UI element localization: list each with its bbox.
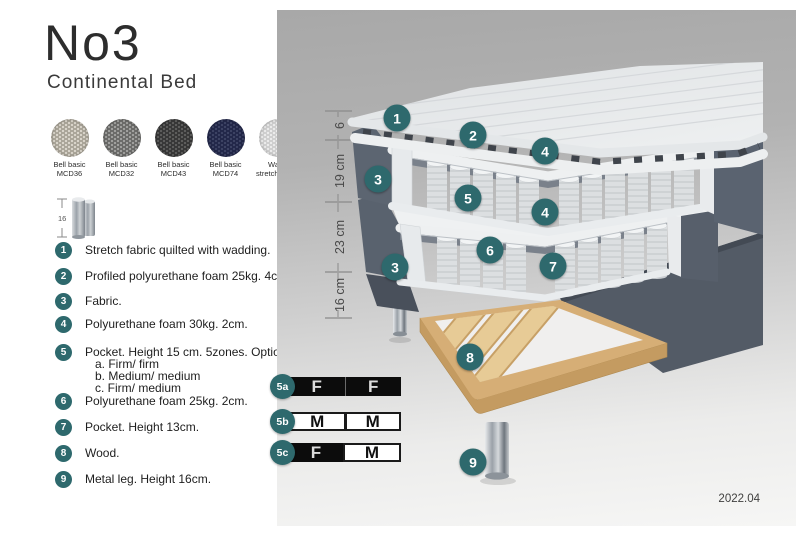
firmness-badge: 5a xyxy=(270,374,295,399)
legend-number: 2 xyxy=(55,268,72,285)
fabric-swatch-label: Bell basicMCD74 xyxy=(209,160,241,178)
legend-item-7: 7 Pocket. Height 13cm. xyxy=(55,418,199,436)
legend-text: Profiled polyurethane foam 25kg. 4cm. xyxy=(85,269,290,283)
legend-number: 3 xyxy=(55,293,72,310)
callout-8: 8 xyxy=(457,344,484,371)
fabric-swatch-label: Bell basicMCD32 xyxy=(105,160,137,178)
legend-text: Metal leg. Height 16cm. xyxy=(85,472,211,486)
firmness-row-5a: 5a F F xyxy=(270,374,401,399)
firmness-bar: F F xyxy=(289,377,401,396)
firmness-cell: M xyxy=(346,412,402,431)
callout-9: 9 xyxy=(460,449,487,476)
callout-5: 5 xyxy=(455,185,482,212)
legend-item-9: 9 Metal leg. Height 16cm. xyxy=(55,470,211,488)
version-label: 2022.04 xyxy=(718,493,760,505)
callout-7: 7 xyxy=(540,253,567,280)
firmness-cell: F xyxy=(289,377,345,396)
legend-item-2: 2 Profiled polyurethane foam 25kg. 4cm. xyxy=(55,267,290,285)
dimension-label-16cm: 16 cm xyxy=(333,278,347,312)
fabric-swatch: Bell basicMCD43 xyxy=(151,119,196,178)
callout-3-upper: 3 xyxy=(365,166,392,193)
firmness-row-5c: 5c F M xyxy=(270,440,401,465)
callout-2: 2 xyxy=(460,122,487,149)
legend-item-5: 5 Pocket. Height 15 cm. 5zones. Option: xyxy=(55,343,290,361)
legend-number: 1 xyxy=(55,242,72,259)
callout-1: 1 xyxy=(384,105,411,132)
leg-dimension-icon: 16 xyxy=(56,192,106,247)
dimension-label-19cm: 19 cm xyxy=(333,154,347,188)
callout-3-lower: 3 xyxy=(382,254,409,281)
legend-item-4: 4 Polyurethane foam 30kg. 2cm. xyxy=(55,315,248,333)
firmness-cell: F xyxy=(289,443,343,462)
leg-dimension-value: 16 xyxy=(58,214,66,223)
fabric-swatch: Bell basicMCD32 xyxy=(99,119,144,178)
dimension-label-6: 6 xyxy=(333,122,347,129)
legend-text: Polyurethane foam 30kg. 2cm. xyxy=(85,317,248,331)
legend-text: Pocket. Height 13cm. xyxy=(85,420,199,434)
firmness-bar: M M xyxy=(289,412,401,431)
fabric-swatch-label: Bell basicMCD36 xyxy=(53,160,85,178)
firmness-row-5b: 5b M M xyxy=(270,409,401,434)
firmness-cell: M xyxy=(289,412,346,431)
product-subtitle: Continental Bed xyxy=(47,72,197,94)
legend-item-8: 8 Wood. xyxy=(55,444,119,462)
legend-text: Fabric. xyxy=(85,294,122,308)
firmness-badge: 5c xyxy=(270,440,295,465)
legend-item-6: 6 Polyurethane foam 25kg. 2cm. xyxy=(55,392,248,410)
legend-text: Stretch fabric quilted with wadding. xyxy=(85,243,270,257)
firmness-bar: F M xyxy=(289,443,401,462)
firmness-cell: F xyxy=(345,377,402,396)
fabric-swatch-circle xyxy=(103,119,141,157)
legend-number: 7 xyxy=(55,419,72,436)
fabric-swatch: Bell basicMCD74 xyxy=(203,119,248,178)
legend-number: 9 xyxy=(55,471,72,488)
legend-item-3: 3 Fabric. xyxy=(55,292,122,310)
product-sheet: No3 Continental Bed Bell basicMCD36 Bell… xyxy=(0,0,800,533)
callout-4-lower: 4 xyxy=(532,199,559,226)
fabric-swatch-circle xyxy=(51,119,89,157)
legend-item-1: 1 Stretch fabric quilted with wadding. xyxy=(55,241,270,259)
legend-number: 4 xyxy=(55,316,72,333)
dimension-labels: 6 19 cm 23 cm 16 cm xyxy=(333,122,347,312)
legend-text: Polyurethane foam 25kg. 2cm. xyxy=(85,394,248,408)
firmness-badge: 5b xyxy=(270,409,295,434)
fabric-swatch-circle xyxy=(207,119,245,157)
legend-text: Wood. xyxy=(85,446,119,460)
firmness-cell: M xyxy=(343,443,401,462)
legend-number: 8 xyxy=(55,445,72,462)
callout-4-upper: 4 xyxy=(532,138,559,165)
fabric-swatch-circle xyxy=(155,119,193,157)
callout-6: 6 xyxy=(477,237,504,264)
metal-leg xyxy=(480,422,516,485)
fabric-swatch: Bell basicMCD36 xyxy=(47,119,92,178)
legend-number: 6 xyxy=(55,393,72,410)
fabric-swatches: Bell basicMCD36 Bell basicMCD32 Bell bas… xyxy=(47,119,300,178)
product-title: No3 xyxy=(44,18,142,68)
dimension-label-23cm: 23 cm xyxy=(333,220,347,254)
legend-number: 5 xyxy=(55,344,72,361)
fabric-swatch-label: Bell basicMCD43 xyxy=(157,160,189,178)
